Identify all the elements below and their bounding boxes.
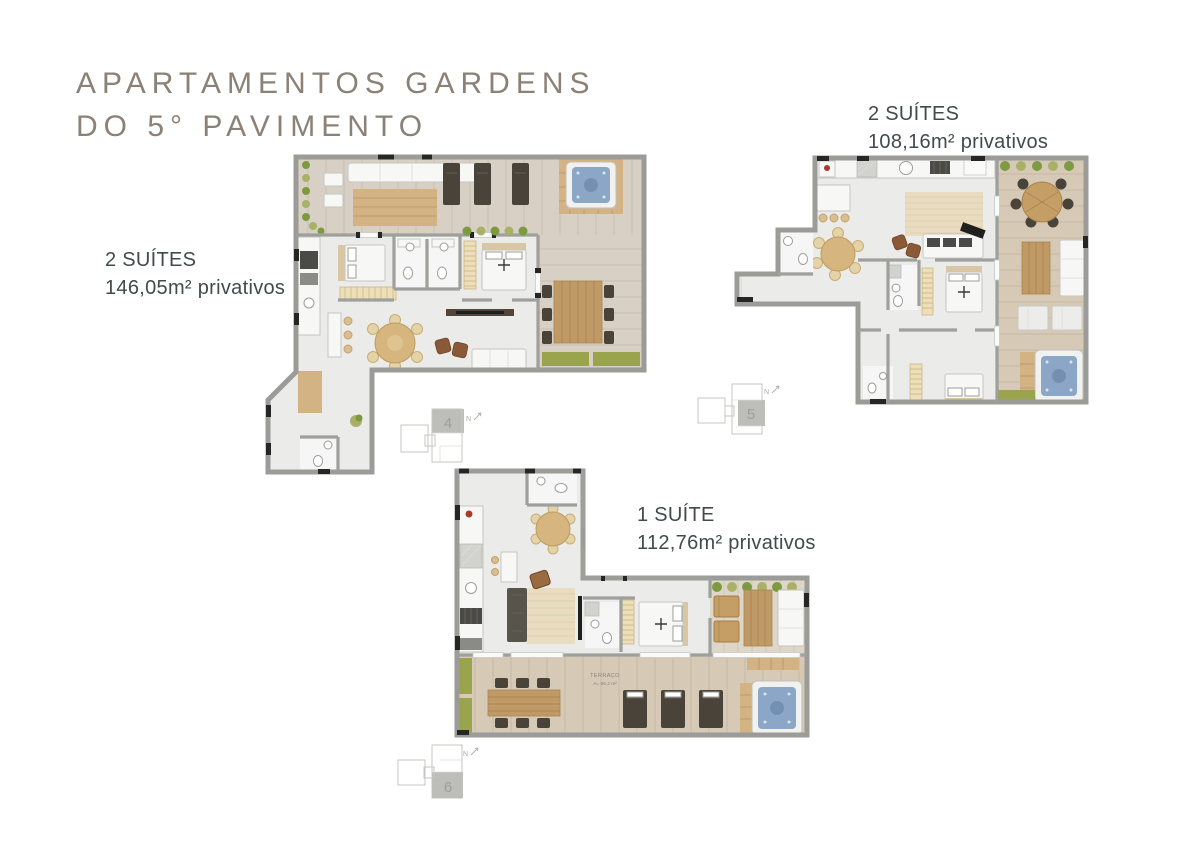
- page-title-line2: DO 5° PAVIMENTO: [76, 105, 596, 148]
- hall-bathroom: [778, 230, 813, 272]
- floorplan-unit-5: [731, 156, 1091, 408]
- living-sofa: [507, 588, 527, 642]
- terrace-sofa: [1060, 240, 1084, 296]
- patio-sofa: [778, 590, 804, 646]
- suite-closet: [922, 268, 933, 315]
- suite-closet: [622, 600, 634, 644]
- living-sofa: [472, 349, 526, 370]
- suite-bathroom: [888, 265, 918, 310]
- north-indicator: N: [764, 386, 779, 396]
- page-title-line1: APARTAMENTOS GARDENS: [76, 62, 596, 105]
- bedroom-bed: [338, 245, 385, 281]
- unit-4-label: 2 SUÍTES 146,05m² privativos: [105, 246, 285, 302]
- suite-closet: [464, 241, 476, 289]
- kitchen-bar: [817, 185, 850, 222]
- terrace-dining: [488, 678, 560, 728]
- svg-text:N: N: [764, 389, 769, 396]
- suite-bathroom: [585, 602, 619, 648]
- patio-table: [744, 590, 772, 646]
- unit-5-label: 2 SUÍTES 108,16m² privativos: [868, 100, 1048, 156]
- page-title: APARTAMENTOS GARDENS DO 5° PAVIMENTO: [76, 62, 596, 148]
- suite-bed: [946, 266, 982, 312]
- kitchen: [817, 160, 995, 178]
- north-indicator: N: [463, 748, 478, 758]
- kitchen: [459, 506, 483, 652]
- living-rug: [527, 588, 575, 644]
- terrace-coffee-table: [353, 189, 437, 226]
- keyplan-unit-4-number: 4: [444, 415, 452, 432]
- svg-text:N: N: [466, 416, 471, 423]
- unit-5-suites: 2 SUÍTES: [868, 100, 1048, 128]
- unit-4-area: 146,05m² privativos: [105, 274, 285, 302]
- keyplan-unit-6: 6 N: [390, 741, 482, 805]
- terrace-loungers: [623, 690, 723, 728]
- unit-4-suites: 2 SUÍTES: [105, 246, 285, 274]
- tv-console: [446, 309, 514, 316]
- keyplan-unit-5: 5 N: [692, 382, 784, 438]
- wc: [527, 473, 577, 504]
- terrace-long-table: [1022, 242, 1050, 294]
- north-indicator: N: [466, 413, 481, 423]
- bedroom-closet: [340, 287, 396, 300]
- suite-bed: [639, 602, 688, 646]
- brochure-page: APARTAMENTOS GARDENS DO 5° PAVIMENTO 2 S…: [0, 0, 1200, 849]
- unit-5-area: 108,16m² privativos: [868, 128, 1048, 156]
- entry-wc: [300, 437, 338, 471]
- svg-text:A= 56,2 m²: A= 56,2 m²: [593, 681, 617, 687]
- svg-text:TERRAÇO: TERRAÇO: [590, 673, 620, 679]
- svg-text:N: N: [463, 751, 468, 758]
- lounge-chairs: [443, 163, 529, 205]
- keyplan-unit-4: 4 N: [396, 406, 484, 470]
- hot-tub: [740, 658, 802, 735]
- hot-tub: [559, 159, 623, 214]
- floorplan-unit-6: TERRAÇO A= 56,2 m²: [455, 468, 810, 738]
- keyplan-unit-6-number: 6: [444, 779, 452, 796]
- tv: [578, 596, 582, 640]
- keyplan-unit-5-number: 5: [747, 406, 755, 423]
- suite-bed: [482, 243, 526, 290]
